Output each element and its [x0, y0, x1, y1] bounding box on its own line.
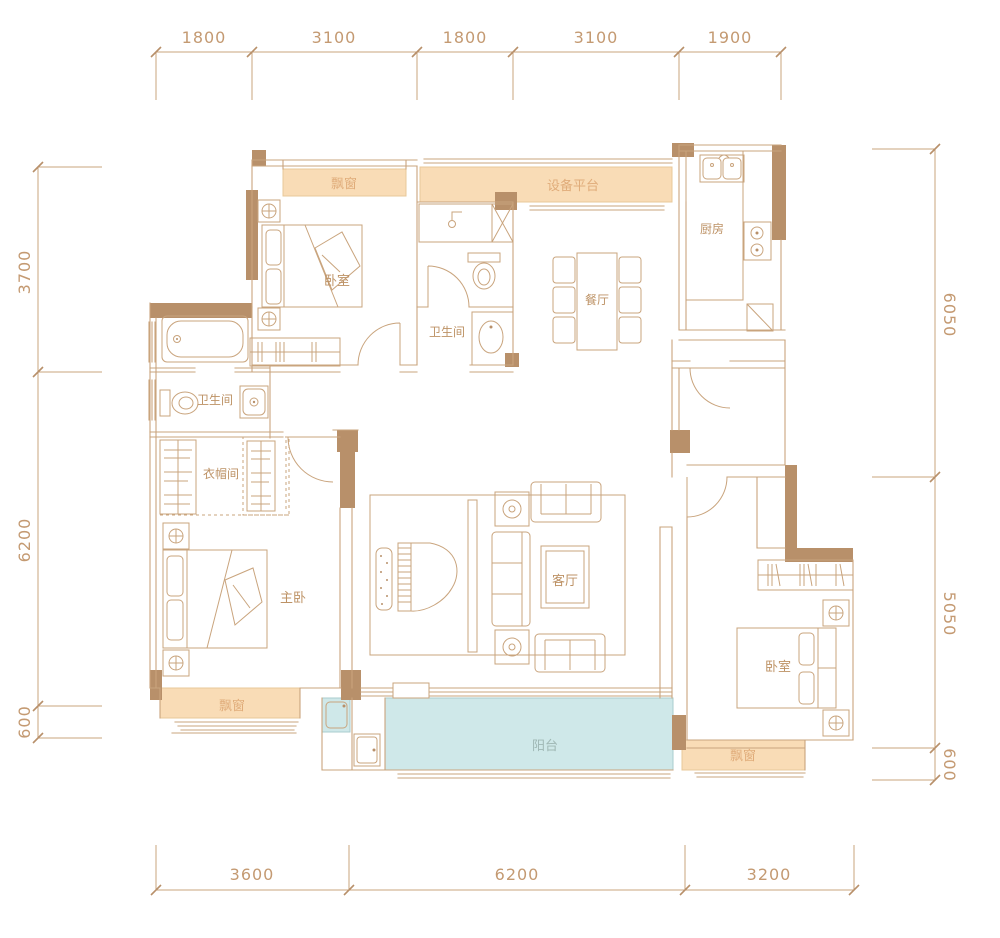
dim-left-2: 6200 — [15, 518, 34, 563]
stove — [744, 222, 771, 260]
master-suite-door — [288, 437, 333, 482]
label-bedroom-right: 卧室 — [765, 659, 791, 675]
kitchen-fixtures — [686, 151, 773, 331]
dim-bottom-1: 3600 — [230, 865, 275, 884]
label-bay-window-master: 飘窗 — [219, 698, 245, 714]
tv-console — [468, 500, 477, 652]
dimension-bottom: 3600 6200 3200 — [151, 845, 859, 895]
label-balcony: 阳台 — [532, 739, 558, 754]
balcony-door-post — [393, 683, 429, 698]
label-equipment-platform: 设备平台 — [547, 178, 599, 194]
dim-top-3: 1800 — [443, 28, 488, 47]
dimension-top: 1800 3100 1800 3100 1900 — [151, 28, 786, 100]
chair — [553, 287, 575, 313]
closet — [250, 338, 340, 366]
entry-door — [690, 368, 730, 408]
label-bedroom-top: 卧室 — [324, 273, 350, 289]
label-bay-window-right: 飘窗 — [730, 748, 756, 764]
bathroom-top-fixtures — [419, 204, 513, 365]
toilet — [160, 390, 198, 416]
storage-door — [354, 734, 380, 766]
piano — [376, 543, 457, 611]
chair — [619, 317, 641, 343]
bedroom-right-furniture — [737, 560, 853, 736]
balcony-zone — [385, 698, 673, 770]
dimension-right: 6050 5050 600 — [872, 144, 959, 785]
bedroom-top-door — [358, 323, 400, 365]
chair — [553, 317, 575, 343]
label-bay-window-top: 飘窗 — [331, 176, 357, 192]
label-living-room: 客厅 — [552, 573, 578, 589]
chair — [553, 257, 575, 283]
sofa-main — [492, 532, 530, 626]
wall-solids — [150, 143, 853, 750]
side-table — [495, 630, 529, 664]
bed — [262, 225, 362, 307]
label-bathroom-master: 卫生间 — [197, 393, 233, 407]
floor-plan-canvas: 1800 3100 1800 3100 1900 3600 6200 3200 … — [0, 0, 1000, 938]
dim-bottom-2: 6200 — [495, 865, 540, 884]
chair — [619, 257, 641, 283]
dim-left-1: 3700 — [15, 250, 34, 295]
side-table — [495, 492, 529, 526]
label-bathroom-top: 卫生间 — [429, 325, 465, 339]
bathroom-top-door — [428, 266, 469, 307]
dim-top-5: 1900 — [708, 28, 753, 47]
kitchen-sink — [700, 155, 744, 182]
bathtub — [162, 316, 248, 362]
wardrobe — [758, 560, 853, 590]
label-dining: 餐厅 — [585, 292, 609, 307]
dimension-left: 3700 6200 600 — [15, 162, 102, 743]
dim-right-1: 6050 — [940, 293, 959, 338]
shower — [240, 386, 268, 418]
fridge — [747, 304, 773, 331]
living-room-furniture — [370, 482, 625, 672]
dim-top-4: 3100 — [574, 28, 619, 47]
bed — [163, 550, 267, 648]
dim-top-1: 1800 — [182, 28, 227, 47]
label-master-bedroom: 主卧 — [280, 591, 306, 606]
dim-top-2: 3100 — [312, 28, 357, 47]
chair — [619, 287, 641, 313]
master-bedroom-furniture — [163, 523, 267, 676]
bedroom-right-door — [687, 477, 727, 517]
dim-left-3: 600 — [15, 705, 34, 739]
sofa-set — [492, 482, 605, 672]
dim-bottom-3: 3200 — [747, 865, 792, 884]
rug — [370, 495, 625, 655]
label-cloakroom: 衣帽间 — [203, 466, 239, 481]
dim-right-2: 5050 — [940, 592, 959, 637]
toilet — [468, 253, 500, 289]
dim-right-3: 600 — [940, 748, 959, 782]
label-kitchen: 厨房 — [700, 221, 724, 236]
